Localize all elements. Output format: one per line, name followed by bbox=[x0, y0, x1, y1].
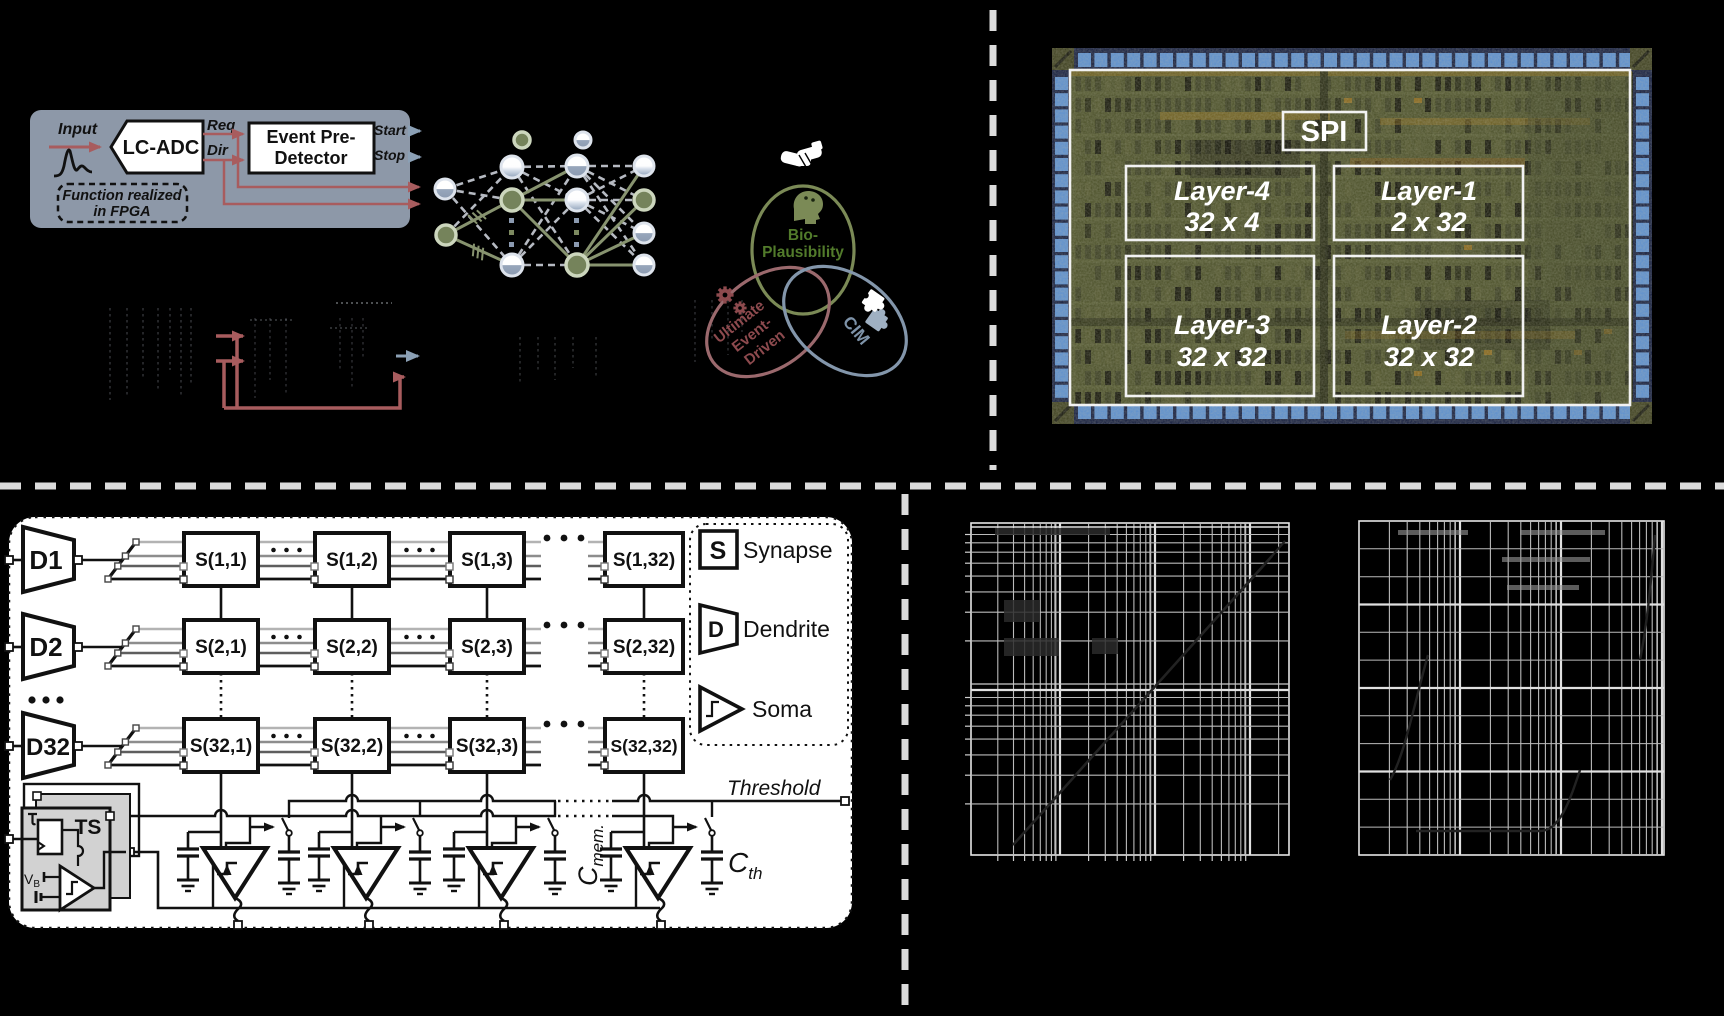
svg-text:Req: Req bbox=[207, 117, 235, 134]
svg-text:D1: D1 bbox=[29, 545, 62, 575]
svg-text:Input: Input bbox=[58, 121, 98, 138]
svg-text:Event Pre-: Event Pre- bbox=[266, 127, 355, 147]
svg-text:32 x 32: 32 x 32 bbox=[1177, 342, 1267, 372]
svg-text:S(32,2): S(32,2) bbox=[321, 736, 383, 757]
svg-text:Layer-2: Layer-2 bbox=[1381, 310, 1477, 340]
svg-text:D32: D32 bbox=[26, 734, 70, 761]
svg-text:Detector: Detector bbox=[274, 148, 347, 168]
svg-text:D2: D2 bbox=[29, 632, 62, 662]
svg-text:Stop: Stop bbox=[374, 147, 406, 163]
svg-text:SPI: SPI bbox=[1301, 116, 1348, 148]
svg-text:Synapse: Synapse bbox=[743, 537, 833, 563]
svg-text:Layer-3: Layer-3 bbox=[1174, 310, 1270, 340]
svg-text:Dendrite: Dendrite bbox=[743, 616, 830, 642]
svg-text:LC-ADC: LC-ADC bbox=[123, 137, 200, 159]
svg-text:S(1,32): S(1,32) bbox=[613, 550, 675, 571]
svg-text:Layer-1: Layer-1 bbox=[1381, 176, 1477, 206]
svg-text:S(1,2): S(1,2) bbox=[326, 550, 378, 571]
svg-text:Layer-4: Layer-4 bbox=[1174, 176, 1270, 206]
svg-text:Start: Start bbox=[374, 122, 407, 138]
svg-text:D: D bbox=[708, 617, 724, 642]
svg-text:Soma: Soma bbox=[752, 696, 812, 722]
svg-text:S: S bbox=[710, 537, 727, 565]
svg-text:S(32,1): S(32,1) bbox=[190, 736, 252, 757]
svg-text:S(2,3): S(2,3) bbox=[461, 637, 513, 658]
svg-text:S(1,3): S(1,3) bbox=[461, 550, 513, 571]
svg-text:in FPGA: in FPGA bbox=[93, 204, 150, 220]
svg-text:Dir: Dir bbox=[207, 142, 229, 159]
svg-text:2 x 32: 2 x 32 bbox=[1390, 207, 1466, 237]
svg-text:S(1,1): S(1,1) bbox=[195, 550, 247, 571]
svg-text:32 x 4: 32 x 4 bbox=[1184, 207, 1259, 237]
svg-text:S(2,2): S(2,2) bbox=[326, 637, 378, 658]
svg-text:Plausibility: Plausibility bbox=[762, 244, 844, 261]
svg-text:S(32,32): S(32,32) bbox=[610, 736, 677, 756]
svg-text:S(2,32): S(2,32) bbox=[613, 637, 675, 658]
svg-text:S(32,3): S(32,3) bbox=[456, 736, 518, 757]
svg-text:Bio-: Bio- bbox=[788, 227, 818, 244]
svg-text:Function realized: Function realized bbox=[62, 188, 182, 204]
svg-text:Threshold: Threshold bbox=[727, 777, 822, 800]
svg-text:S(2,1): S(2,1) bbox=[195, 637, 247, 658]
svg-text:32 x 32: 32 x 32 bbox=[1384, 342, 1474, 372]
